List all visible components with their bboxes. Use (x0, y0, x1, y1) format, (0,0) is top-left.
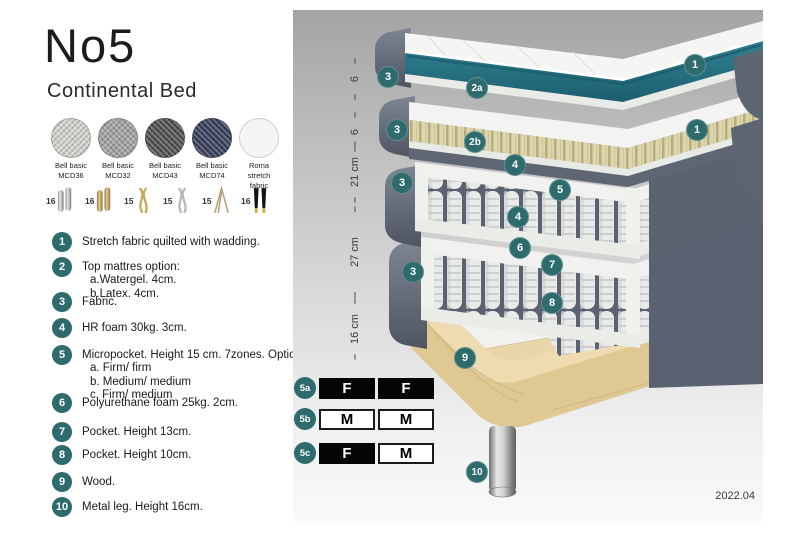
firmness-cell: M (378, 409, 434, 430)
diagram-callout-5: 5 (549, 179, 571, 201)
feature-item-4: 4 HR foam 30kg. 3cm. (52, 318, 187, 338)
feature-text: Top mattres option: (82, 260, 180, 274)
feature-text: Pocket. Height 10cm. (82, 448, 191, 462)
feature-number-badge: 2 (52, 257, 72, 277)
dimension-label: 21 cm (347, 141, 363, 203)
feature-number-badge: 10 (52, 497, 72, 517)
feature-item-10: 10 Metal leg. Height 16cm. (52, 497, 203, 517)
feature-number-badge: 1 (52, 232, 72, 252)
diagram-callout-2a: 2a (466, 77, 488, 99)
feature-number-badge: 3 (52, 292, 72, 312)
feature-list: 1 Stretch fabric quilted with wadding. 2… (52, 0, 298, 533)
diagram-callout-10: 10 (466, 461, 488, 483)
feature-number-badge: 6 (52, 393, 72, 413)
feature-text: HR foam 30kg. 3cm. (82, 321, 187, 335)
dimension-label: 16 cm (347, 298, 363, 360)
feature-number-badge: 9 (52, 472, 72, 492)
firmness-row-badge: 5c (294, 442, 316, 464)
diagram-callout-2b: 2b (464, 131, 486, 153)
feature-sub-option: a.Watergel. 4cm. (90, 274, 180, 288)
diagram-callout-9: 9 (454, 347, 476, 369)
diagram-callout-1: 1 (684, 54, 706, 76)
firmness-cell: F (319, 443, 375, 464)
version-label: 2022.04 (715, 490, 755, 502)
firmness-cell: M (319, 409, 375, 430)
feature-item-9: 9 Wood. (52, 472, 115, 492)
diagram-callout-3: 3 (402, 261, 424, 283)
diagram-callout-4: 4 (504, 154, 526, 176)
feature-sub-option: a. Firm/ firm (90, 362, 305, 376)
product-sheet: No5 Continental Bed Bell basicMCD36 Bell… (0, 0, 800, 533)
diagram-callout-6: 6 (509, 237, 531, 259)
feature-text: Micropocket. Height 15 cm. 7zones. Optio… (82, 348, 305, 362)
diagram-callout-3: 3 (391, 172, 413, 194)
diagram-callout-1: 1 (686, 119, 708, 141)
feature-number-badge: 8 (52, 445, 72, 465)
firmness-row-badge: 5b (294, 408, 316, 430)
feature-item-6: 6 Polyurethane foam 25kg. 2cm. (52, 393, 238, 413)
diagram-callout-3: 3 (377, 66, 399, 88)
feature-text: Polyurethane foam 25kg. 2cm. (82, 396, 238, 410)
metal-leg-front (489, 426, 516, 497)
dimension-label: 6 (347, 58, 363, 100)
diagram-callout-8: 8 (541, 292, 563, 314)
feature-item-8: 8 Pocket. Height 10cm. (52, 445, 191, 465)
feature-text: Metal leg. Height 16cm. (82, 500, 203, 514)
feature-text: Stretch fabric quilted with wadding. (82, 235, 260, 249)
feature-text: Pocket. Height 13cm. (82, 425, 191, 439)
feature-number-badge: 5 (52, 345, 72, 365)
firmness-cell: F (378, 378, 434, 399)
feature-number-badge: 4 (52, 318, 72, 338)
firmness-row-5a: 5a F F (294, 377, 434, 399)
feature-item-1: 1 Stretch fabric quilted with wadding. (52, 232, 260, 252)
diagram-callout-4: 4 (507, 206, 529, 228)
feature-sub-option: b. Medium/ medium (90, 376, 305, 390)
feature-number-badge: 7 (52, 422, 72, 442)
feature-item-7: 7 Pocket. Height 13cm. (52, 422, 191, 442)
firmness-row-badge: 5a (294, 377, 316, 399)
firmness-cell: M (378, 443, 434, 464)
firmness-row-5b: 5b M M (294, 408, 434, 430)
exploded-view-panel: 5a F F 5b M M 5c F M 2022.04 6621 cm27 c… (293, 10, 763, 523)
firmness-cell: F (319, 378, 375, 399)
dimension-label: 27 cm (347, 206, 363, 298)
firmness-row-5c: 5c F M (294, 442, 434, 464)
diagram-callout-3: 3 (386, 119, 408, 141)
feature-text: Fabric. (82, 295, 117, 309)
feature-text: Wood. (82, 475, 115, 489)
feature-item-3: 3 Fabric. (52, 292, 117, 312)
diagram-callout-7: 7 (541, 254, 563, 276)
